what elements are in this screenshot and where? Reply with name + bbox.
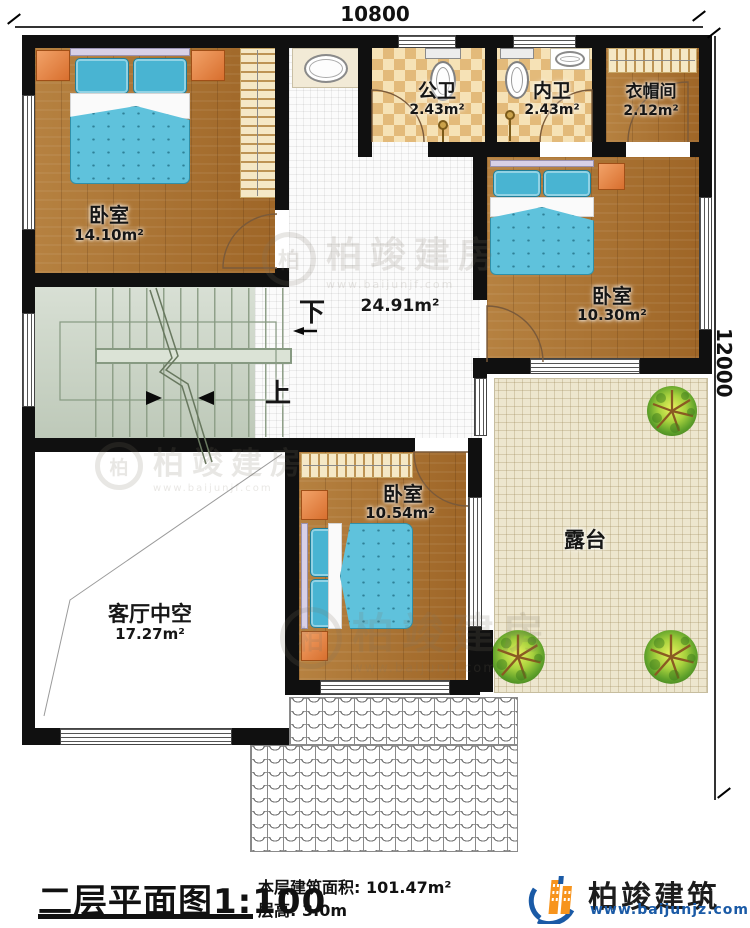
terrace-door [474, 378, 487, 436]
wall [428, 142, 540, 157]
nightstand [301, 490, 328, 520]
room-label: 公卫 [397, 82, 477, 102]
dimension-top-label: 10800 [340, 2, 410, 26]
dimension-right-line [714, 36, 716, 800]
wall [22, 35, 712, 48]
toilet-tank [425, 48, 461, 59]
bed-quilt [70, 106, 190, 184]
drain-pipe [442, 129, 444, 142]
wall [450, 680, 480, 695]
wardrobe-rod [303, 465, 411, 466]
room-area: 10.30m² [562, 308, 662, 324]
room-area: 2.43m² [397, 103, 477, 118]
wall [285, 438, 299, 695]
room-label: 内卫 [508, 82, 596, 102]
room-area: 17.27m² [76, 627, 224, 643]
window [60, 728, 232, 745]
wall [358, 142, 372, 157]
bed-headboard [490, 160, 594, 167]
bed-quilt [340, 523, 413, 629]
tree-icon [642, 628, 700, 686]
wardrobe [240, 48, 276, 198]
window [468, 497, 482, 627]
drain-pipe [509, 119, 511, 141]
room-label: 卧室 [353, 484, 453, 505]
window [513, 35, 576, 48]
wall [473, 358, 530, 374]
roof-tiles [250, 745, 518, 852]
roof-tiles [289, 697, 518, 745]
wall [22, 273, 289, 287]
window [699, 197, 712, 330]
window [398, 35, 456, 48]
title-underline [38, 914, 253, 919]
pillow-icon [75, 58, 129, 94]
dimension-tick [7, 13, 21, 24]
tree-icon [645, 384, 699, 438]
toilet-tank [500, 48, 534, 59]
wall [640, 358, 712, 374]
wall [699, 35, 712, 197]
wall [285, 438, 415, 452]
window [320, 680, 450, 695]
room-label: 客厅中空 [75, 603, 225, 625]
floor-drain-icon [438, 120, 448, 130]
bed-headboard [301, 523, 308, 629]
room-area: 14.10m² [59, 228, 159, 244]
window [22, 313, 35, 407]
wall [473, 157, 487, 300]
clothes-rod [610, 60, 695, 61]
room-label: 卧室 [59, 205, 159, 226]
bed-sheet [328, 523, 342, 629]
room-label: 衣帽间 [606, 84, 696, 102]
wall [275, 35, 289, 210]
dimension-top-line [15, 26, 703, 28]
pillow-icon [493, 170, 541, 197]
room-area: 2.12m² [606, 104, 696, 119]
room-area: 2.43m² [508, 103, 596, 118]
room-label: 卧室 [562, 286, 662, 307]
wall [285, 680, 320, 695]
room-area: 10.54m² [350, 506, 450, 522]
stairs-down-label: 下 [294, 300, 330, 327]
wall [22, 438, 299, 452]
wall [468, 438, 482, 497]
floor-stats: 本层建筑面积: 101.47m² 层高: 3.0m [258, 876, 451, 922]
bed-headboard [70, 48, 190, 56]
brand-logo-icon [526, 874, 584, 924]
dimension-tick [717, 787, 731, 798]
sink-icon [304, 54, 348, 83]
brand-website: www.baijunjz.com [590, 902, 749, 918]
wardrobe-rod [257, 50, 258, 196]
nightstand [36, 50, 70, 81]
dimension-tick [692, 10, 706, 21]
nightstand [191, 50, 225, 81]
window [22, 95, 35, 230]
dimension-right-label: 12000 [712, 328, 736, 398]
stair-handrail [95, 348, 292, 364]
pillow-icon [133, 58, 187, 94]
wall [485, 48, 497, 142]
stairs-up-label: 上 [260, 381, 296, 408]
wall [592, 142, 626, 157]
room-label: 露台 [535, 529, 635, 551]
window [530, 358, 640, 374]
nightstand [301, 631, 328, 661]
bed-quilt [490, 207, 594, 275]
wall [358, 48, 372, 157]
pillow-icon [543, 170, 591, 197]
room-area: 24.91m² [350, 298, 450, 316]
nightstand [598, 163, 625, 190]
sink-icon [555, 51, 585, 67]
wall [690, 142, 712, 157]
tree-icon [489, 628, 547, 686]
living-void-floor [35, 452, 285, 728]
